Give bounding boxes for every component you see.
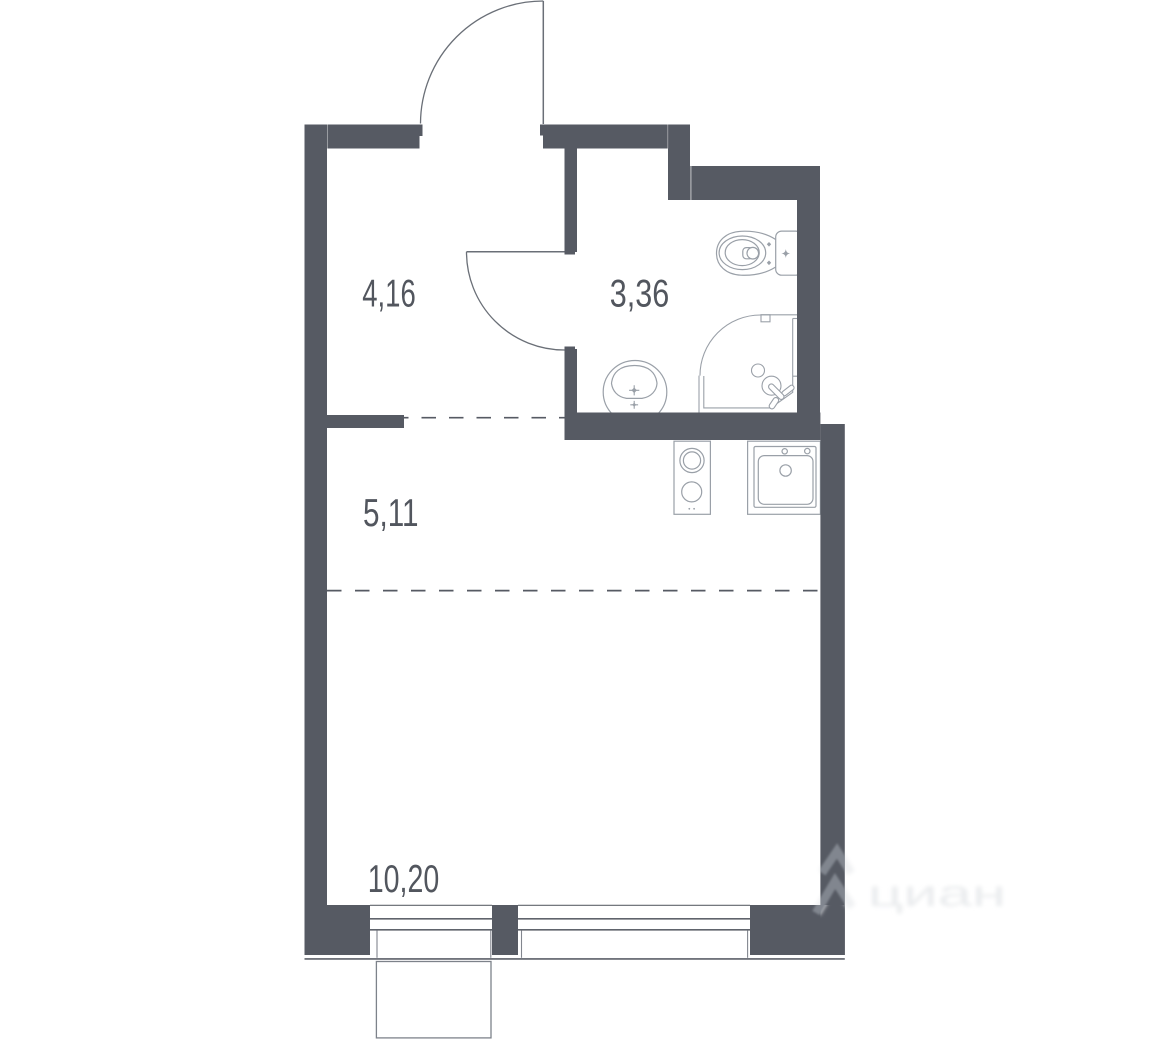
svg-text:3,36: 3,36 xyxy=(610,273,670,316)
svg-text:циан: циан xyxy=(868,873,1006,914)
svg-text:4,16: 4,16 xyxy=(362,273,416,316)
svg-text:5,11: 5,11 xyxy=(363,492,419,535)
svg-text:10,20: 10,20 xyxy=(368,858,440,901)
